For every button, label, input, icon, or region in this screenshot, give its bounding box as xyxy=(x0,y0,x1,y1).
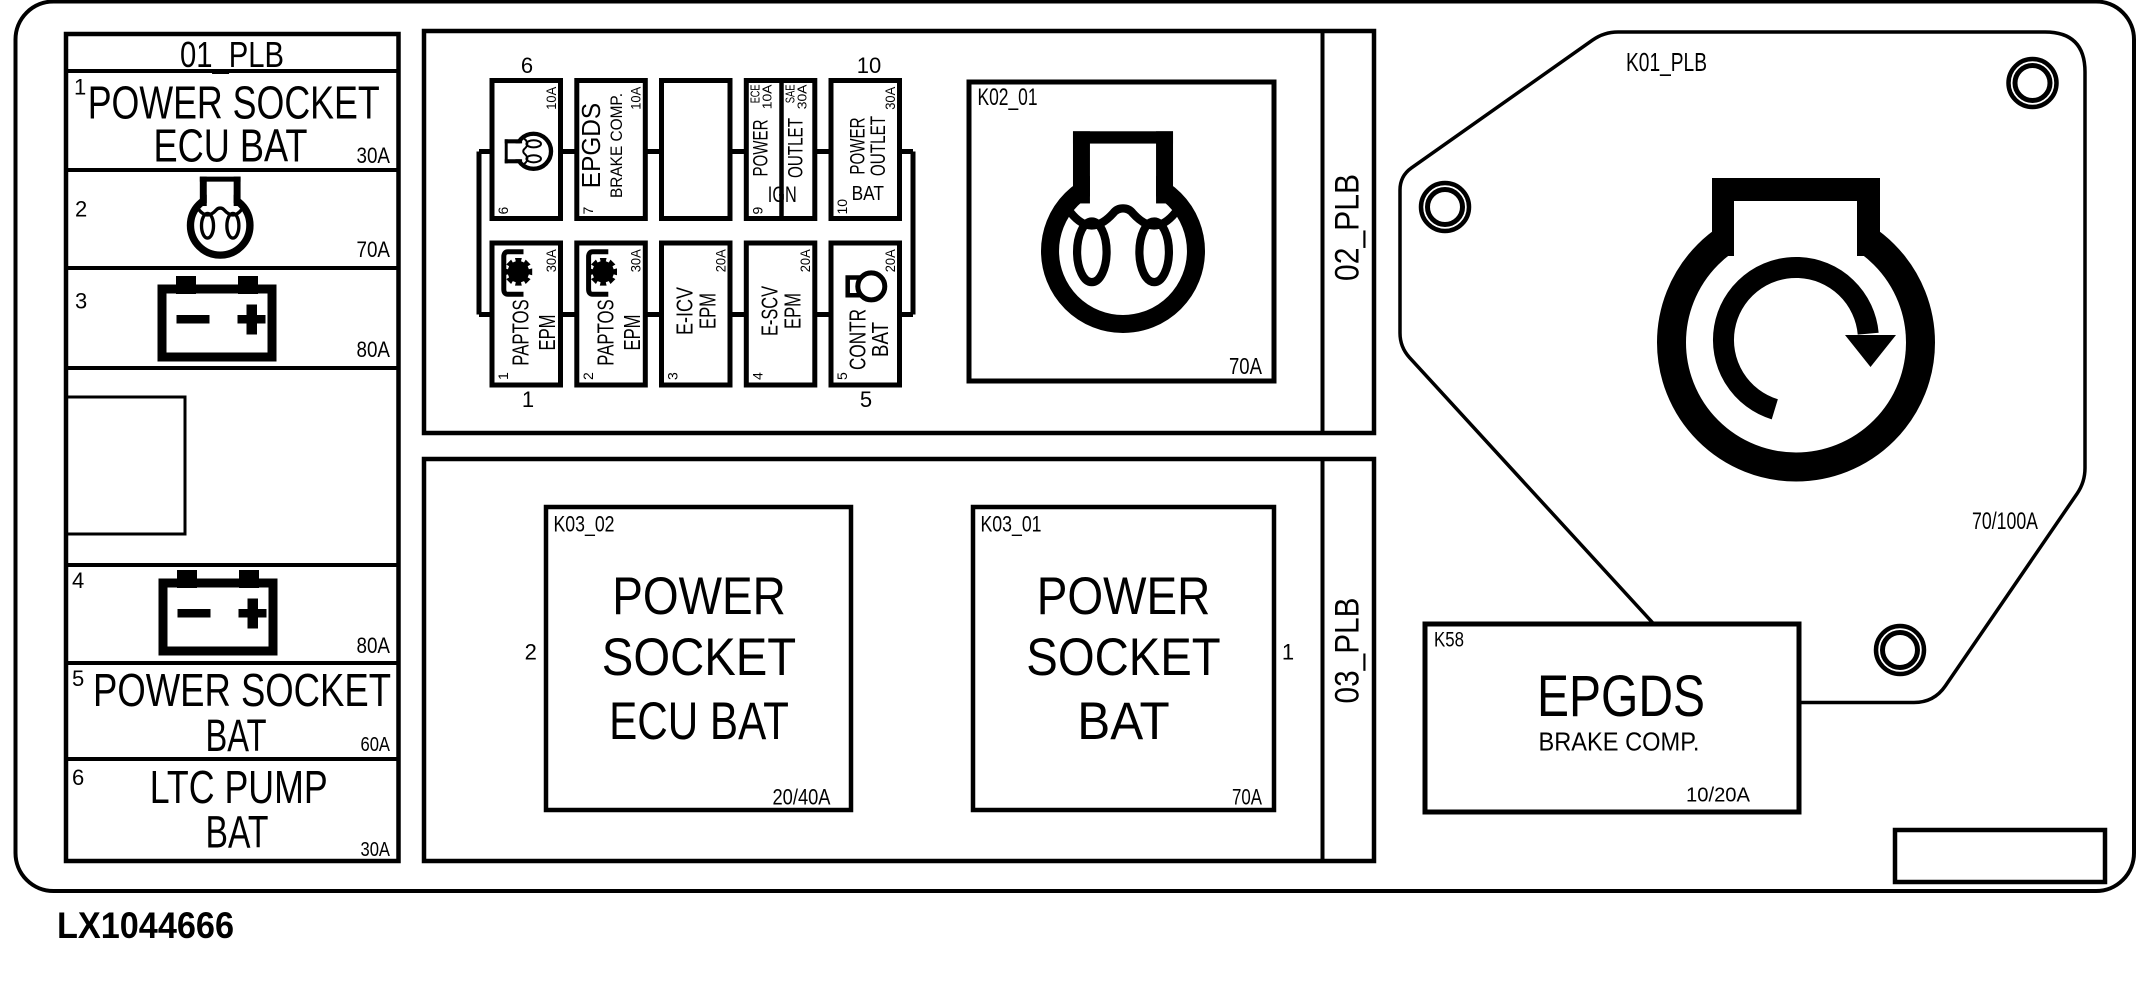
svg-text:EPM: EPM xyxy=(695,293,721,329)
svg-text:01_PLB: 01_PLB xyxy=(180,34,284,75)
svg-text:10A: 10A xyxy=(543,86,559,110)
svg-text:EPM: EPM xyxy=(619,315,645,351)
svg-text:PAPTOS: PAPTOS xyxy=(508,299,534,366)
svg-text:2: 2 xyxy=(75,197,87,222)
svg-text:70A: 70A xyxy=(1229,353,1263,379)
svg-text:10A: 10A xyxy=(761,84,775,110)
svg-text:5: 5 xyxy=(834,372,850,380)
svg-text:5: 5 xyxy=(72,666,84,691)
svg-text:EPGDS: EPGDS xyxy=(576,103,606,188)
svg-text:3: 3 xyxy=(665,372,681,380)
svg-text:OUTLET: OUTLET xyxy=(866,116,890,176)
svg-text:60A: 60A xyxy=(361,733,391,756)
svg-text:ECU BAT: ECU BAT xyxy=(154,120,308,172)
svg-text:70A: 70A xyxy=(357,237,391,262)
svg-text:30A: 30A xyxy=(357,143,391,168)
svg-text:20/40A: 20/40A xyxy=(773,784,831,809)
svg-text:6: 6 xyxy=(495,207,511,215)
svg-text:70/100A: 70/100A xyxy=(1972,508,2038,535)
svg-text:IGN: IGN xyxy=(768,182,797,207)
svg-text:6: 6 xyxy=(72,765,84,790)
svg-text:BAT: BAT xyxy=(1077,692,1169,751)
svg-text:30A: 30A xyxy=(543,249,559,273)
svg-text:6: 6 xyxy=(521,53,533,78)
svg-text:9: 9 xyxy=(749,207,765,215)
svg-text:03_PLB: 03_PLB xyxy=(1329,598,1367,704)
svg-text:K03_01: K03_01 xyxy=(981,511,1042,536)
svg-text:LX1044666: LX1044666 xyxy=(57,905,234,946)
svg-text:BAT: BAT xyxy=(206,807,269,858)
svg-text:POWER: POWER xyxy=(749,120,773,177)
svg-text:K01_PLB: K01_PLB xyxy=(1626,47,1707,77)
svg-text:PAPTOS: PAPTOS xyxy=(592,299,618,366)
svg-text:POWER: POWER xyxy=(612,567,786,626)
svg-text:1: 1 xyxy=(495,372,511,380)
svg-text:20A: 20A xyxy=(797,249,813,273)
svg-text:10A: 10A xyxy=(628,86,644,110)
svg-text:1: 1 xyxy=(1282,640,1294,665)
svg-text:POWER: POWER xyxy=(1037,567,1211,626)
svg-text:20A: 20A xyxy=(712,249,728,273)
svg-text:80A: 80A xyxy=(357,337,391,362)
svg-text:30A: 30A xyxy=(796,84,810,110)
svg-text:LTC PUMP: LTC PUMP xyxy=(150,761,328,813)
svg-text:EPM: EPM xyxy=(534,315,560,351)
svg-text:BRAKE COMP.: BRAKE COMP. xyxy=(1539,727,1700,757)
svg-text:K58: K58 xyxy=(1434,628,1464,651)
svg-text:EPGDS: EPGDS xyxy=(1537,664,1705,729)
svg-text:10/20A: 10/20A xyxy=(1686,784,1751,806)
svg-text:4: 4 xyxy=(749,372,765,380)
svg-text:BAT: BAT xyxy=(867,322,893,357)
svg-text:BAT: BAT xyxy=(852,182,885,205)
svg-text:70A: 70A xyxy=(1232,784,1262,809)
svg-text:OUTLET: OUTLET xyxy=(784,118,808,178)
svg-text:2: 2 xyxy=(580,372,596,380)
svg-text:10: 10 xyxy=(834,199,850,215)
svg-text:K03_02: K03_02 xyxy=(554,511,615,536)
svg-text:30A: 30A xyxy=(628,249,644,273)
svg-text:K02_01: K02_01 xyxy=(978,84,1038,111)
svg-text:4: 4 xyxy=(72,568,84,593)
svg-text:EPM: EPM xyxy=(779,293,805,329)
svg-text:5: 5 xyxy=(860,387,872,412)
svg-text:1: 1 xyxy=(522,387,534,412)
svg-text:7: 7 xyxy=(580,207,596,215)
svg-text:POWER SOCKET: POWER SOCKET xyxy=(93,664,391,716)
svg-text:1: 1 xyxy=(74,75,86,100)
svg-text:SOCKET: SOCKET xyxy=(602,628,796,687)
svg-text:02_PLB: 02_PLB xyxy=(1329,174,1367,281)
svg-text:10: 10 xyxy=(857,53,881,78)
svg-text:ECU BAT: ECU BAT xyxy=(609,692,789,751)
svg-text:30A: 30A xyxy=(882,86,898,110)
svg-text:BAT: BAT xyxy=(206,710,267,761)
svg-text:2: 2 xyxy=(525,640,537,665)
svg-text:3: 3 xyxy=(75,289,87,314)
svg-text:20A: 20A xyxy=(882,249,898,273)
svg-text:80A: 80A xyxy=(357,633,391,658)
svg-text:30A: 30A xyxy=(361,838,391,861)
svg-text:SOCKET: SOCKET xyxy=(1026,628,1220,687)
svg-text:BRAKE COMP.: BRAKE COMP. xyxy=(607,93,626,198)
